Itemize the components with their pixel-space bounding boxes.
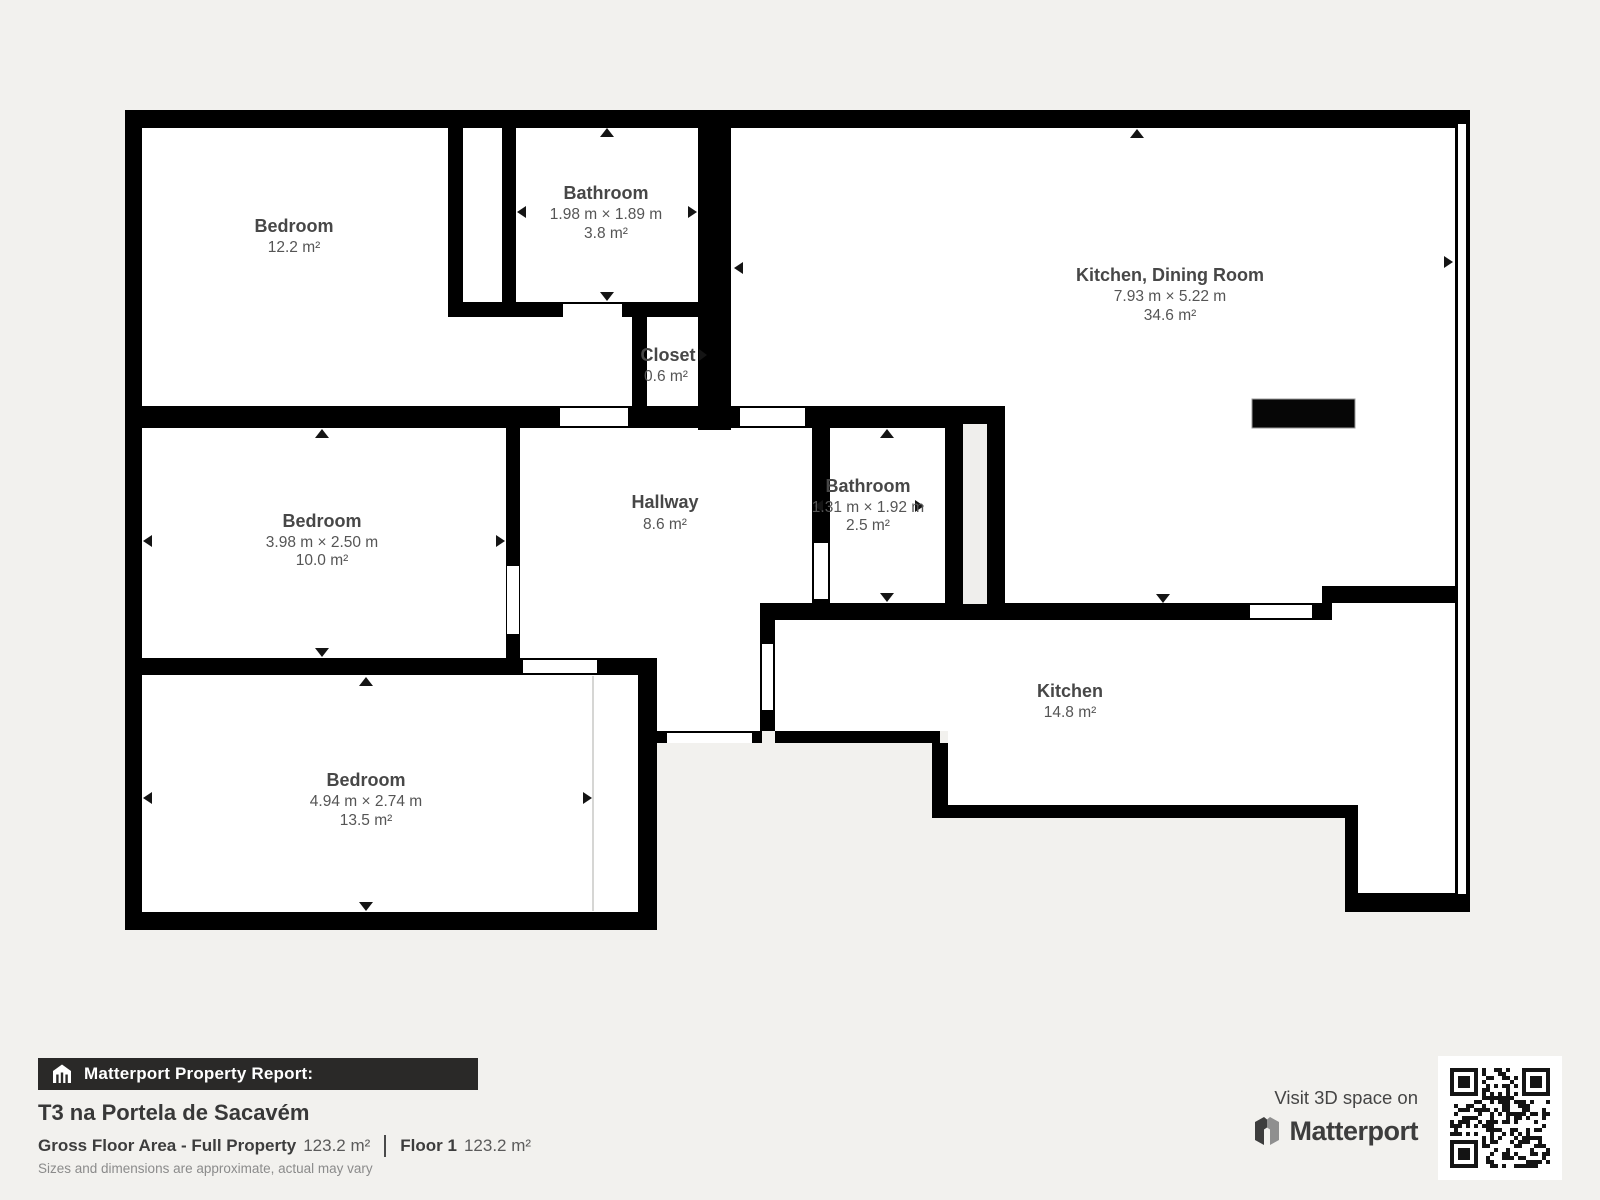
qr-code — [1438, 1056, 1562, 1180]
bedroom-mid-dims: 3.98 m × 2.50 m — [266, 534, 378, 551]
front-door-opening — [667, 733, 752, 743]
hallway-area: 8.6 m² — [643, 516, 687, 533]
wall-segment — [448, 128, 463, 304]
kitchen-dining-name: Kitchen, Dining Room — [1076, 265, 1264, 285]
bedroom-mid-name: Bedroom — [282, 511, 361, 531]
kitchen-dining-dims: 7.93 m × 5.22 m — [1114, 288, 1226, 305]
wall-segment — [698, 110, 731, 430]
hallway-name: Hallway — [631, 492, 698, 512]
wall-segment — [760, 603, 1332, 620]
wall-segment — [638, 673, 657, 930]
matterport-logo: Matterport — [1251, 1115, 1419, 1147]
room-shaft-strip — [463, 128, 502, 302]
door-opening — [507, 566, 519, 634]
property-title: T3 na Portela de Sacavém — [38, 1100, 309, 1126]
visit-3d-block: Visit 3D space on Matterport — [1251, 1087, 1419, 1147]
wall-segment — [1322, 586, 1470, 603]
gross-floor-area-value: 123.2 m² — [303, 1136, 370, 1156]
report-label: Matterport Property Report: — [84, 1064, 313, 1084]
bathroom-tl-name: Bathroom — [564, 183, 649, 203]
door-opening — [762, 644, 773, 710]
door-opening — [523, 660, 597, 673]
kitchen-counter-block — [1252, 399, 1355, 428]
property-report-page: Bedroom 12.2 m² Bathroom 1.98 m × 1.89 m… — [0, 0, 1600, 1200]
bedroom-tl-area: 12.2 m² — [268, 239, 321, 256]
bedroom-bottom-name: Bedroom — [326, 770, 405, 790]
floor1-value: 123.2 m² — [464, 1136, 531, 1156]
duct-shaft — [963, 424, 987, 604]
closet-area: 0.6 m² — [644, 368, 688, 385]
floor1-label: Floor 1 — [400, 1136, 457, 1156]
wall-segment — [1345, 893, 1470, 912]
bathroom-tl-area: 3.8 m² — [584, 225, 628, 242]
door-opening — [1250, 605, 1312, 618]
window-glass — [1458, 124, 1466, 894]
closet-name: Closet — [640, 345, 695, 365]
door-opening — [814, 543, 828, 599]
wall-segment — [940, 805, 1358, 818]
kitchen-name: Kitchen — [1037, 681, 1103, 701]
visit-3d-text: Visit 3D space on — [1251, 1087, 1419, 1109]
bedroom-tl-name: Bedroom — [254, 216, 333, 236]
bedroom-bottom-dims: 4.94 m × 2.74 m — [310, 793, 422, 810]
kitchen-area: 14.8 m² — [1044, 704, 1097, 721]
wall-segment — [775, 731, 940, 743]
door-opening — [563, 304, 622, 317]
window-outer-line — [1466, 110, 1470, 912]
bathroom-tl-dims: 1.98 m × 1.89 m — [550, 206, 662, 223]
room-bedroom-tl-extension — [448, 317, 632, 406]
wall-segment — [1345, 805, 1358, 895]
matterport-logo-icon — [1251, 1115, 1281, 1147]
room-bedroom-tl — [142, 128, 448, 406]
wall-segment — [125, 110, 1470, 128]
bedroom-bottom-area: 13.5 m² — [340, 812, 393, 829]
floor-plan: Bedroom 12.2 m² Bathroom 1.98 m × 1.89 m… — [0, 0, 1600, 1040]
door-opening — [560, 408, 628, 426]
window-inner-line — [1455, 124, 1458, 894]
wall-segment — [125, 110, 142, 930]
house-icon — [52, 1064, 72, 1084]
bedroom-mid-area: 10.0 m² — [296, 552, 349, 569]
wall-segment — [125, 912, 657, 930]
kitchen-dining-area: 34.6 m² — [1144, 307, 1197, 324]
bathroom-mid-name: Bathroom — [826, 476, 911, 496]
disclaimer-text: Sizes and dimensions are approximate, ac… — [38, 1161, 373, 1176]
report-header-bar: Matterport Property Report: — [38, 1058, 478, 1090]
qr-code-pattern — [1450, 1068, 1550, 1168]
door-opening — [740, 408, 805, 426]
bathroom-mid-dims: 1.31 m × 1.92 m — [812, 499, 924, 516]
gross-floor-area-label: Gross Floor Area - Full Property — [38, 1136, 296, 1156]
bathroom-mid-area: 2.5 m² — [846, 517, 890, 534]
matterport-wordmark: Matterport — [1290, 1116, 1419, 1147]
floor-area-stats: Gross Floor Area - Full Property 123.2 m… — [38, 1135, 531, 1157]
wall-segment — [502, 128, 516, 304]
divider — [384, 1135, 386, 1157]
